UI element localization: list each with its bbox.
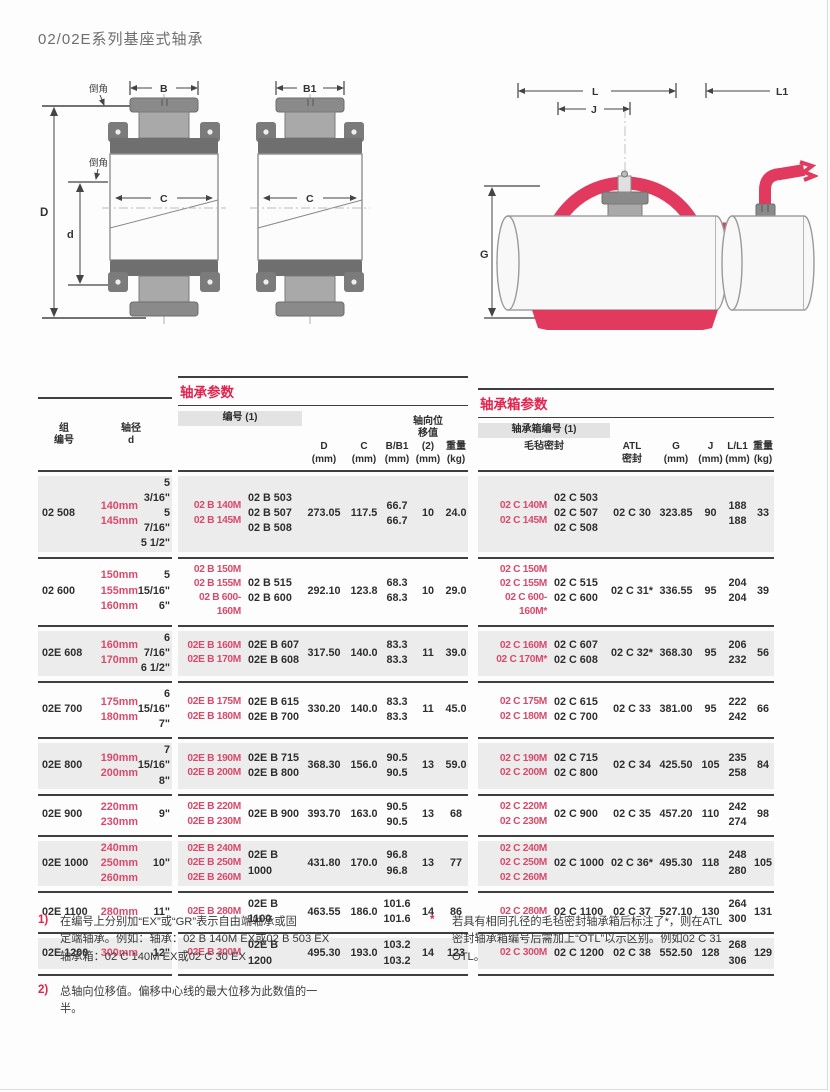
value-atl-seal: 02 C 35 bbox=[610, 800, 654, 830]
value-C: 156.0 bbox=[346, 751, 382, 781]
value-bearing-weight: 24.0 bbox=[444, 491, 468, 536]
value-G: 457.20 bbox=[654, 800, 698, 830]
dim-B1-label: B1 bbox=[303, 83, 317, 95]
shaft-diameter-mm: 160mm 170mm bbox=[90, 631, 138, 676]
group-number: 02 600 bbox=[38, 568, 90, 613]
value-atl-seal: 02 C 32* bbox=[610, 638, 654, 668]
bearing-designation-metric: 02E B 160M 02E B 170M bbox=[178, 638, 246, 668]
value-C: 123.8 bbox=[346, 563, 382, 620]
housing-designation-metric: 02 C 160M 02 C 170M* bbox=[478, 638, 552, 668]
value-axial-displacement: 13 bbox=[412, 842, 444, 885]
value-axial-displacement: 10 bbox=[412, 491, 444, 536]
group-number-header: 组 编号 bbox=[38, 423, 90, 448]
housing-designation-header: 轴承箱编号 (1) bbox=[478, 423, 610, 438]
bearing-designation: 02 B 515 02 B 600 bbox=[246, 563, 302, 620]
bearing-designation: 02E B 715 02E B 800 bbox=[246, 751, 302, 781]
value-housing-weight: 33 bbox=[752, 491, 774, 536]
footnote-marker: 1) bbox=[38, 914, 54, 966]
col-J: J bbox=[698, 440, 723, 453]
value-atl-seal: 02 C 30 bbox=[610, 491, 654, 536]
value-J: 95 bbox=[698, 563, 723, 620]
chamfer-label-2: 倒角 bbox=[89, 157, 108, 169]
housing-designation-metric: 02 C 240M 02 C 250M 02 C 260M bbox=[478, 842, 552, 885]
shaft-diameter-mm: 240mm 250mm 260mm bbox=[90, 841, 138, 886]
chamfer-label: 倒角 bbox=[89, 83, 108, 95]
col-weight: 重量 bbox=[752, 440, 774, 453]
value-J: 110 bbox=[698, 800, 723, 830]
value-B-B1: 96.8 96.8 bbox=[382, 842, 412, 885]
bearing-designation-metric: 02E B 240M 02E B 250M 02E B 260M bbox=[178, 842, 246, 885]
value-housing-weight: 105 bbox=[752, 842, 774, 885]
value-L-L1: 206 232 bbox=[723, 638, 752, 668]
dim-C-label-2: C bbox=[306, 193, 314, 205]
value-G: 336.55 bbox=[654, 563, 698, 620]
value-atl-seal: 02 C 34 bbox=[610, 751, 654, 781]
value-G: 425.50 bbox=[654, 751, 698, 781]
bearing-designation: 02E B 607 02E B 608 bbox=[246, 638, 302, 668]
value-axial-displacement: 13 bbox=[412, 800, 444, 830]
value-atl-seal: 02 C 36* bbox=[610, 842, 654, 885]
bearing-designation-metric: 02E B 190M 02E B 200M bbox=[178, 751, 246, 781]
shaft-diameter-mm: 140mm 145mm bbox=[90, 476, 138, 552]
value-L-L1: 235 258 bbox=[723, 751, 752, 781]
footnote-text: 总轴向位移值。偏移中心线的最大位移为此数值的一 半。 bbox=[60, 984, 317, 1019]
bearing-section-title: 轴承参数 bbox=[178, 376, 468, 406]
group-number: 02E 608 bbox=[38, 631, 90, 676]
footnote-text: 在编号上分别加“EX”或“GR”表示自由端轴承或固 定端轴承。例如：轴承：02 … bbox=[60, 914, 329, 966]
table-row: 02E 800 190mm 200mm 7 15/16" 8" 02E B 19… bbox=[38, 739, 778, 795]
bearing-designation: 02E B 900 bbox=[246, 800, 302, 830]
housing-header: 轴承箱编号 (1) 毛毡密封 ATL G J L/L1 重量 密封 (mm) (… bbox=[478, 418, 774, 472]
value-C: 140.0 bbox=[346, 638, 382, 668]
shaft-diameter-mm: 220mm 230mm bbox=[90, 800, 138, 830]
value-G: 495.30 bbox=[654, 842, 698, 885]
shaft-diameter-inch: 6 15/16" 7" bbox=[138, 687, 172, 732]
value-L-L1: 222 242 bbox=[723, 695, 752, 725]
table-row: 02E 700 175mm 180mm 6 15/16" 7" 02E B 17… bbox=[38, 683, 778, 739]
value-axial-displacement: 11 bbox=[412, 638, 444, 668]
value-bearing-weight: 29.0 bbox=[444, 563, 468, 620]
footnote-marker: * bbox=[430, 914, 446, 966]
value-G: 381.00 bbox=[654, 695, 698, 725]
page-title: 02/02E系列基座式轴承 bbox=[38, 28, 204, 49]
footnote-star: * 若具有相同孔径的毛毡密封轴承箱后标注了*，则在ATL 密封轴承箱编号后需加上… bbox=[430, 914, 778, 966]
value-B-B1: 68.3 68.3 bbox=[382, 563, 412, 620]
table-header: 组 编号 轴径 d 轴承参数 编号 (1) 轴向位 D C B/B1 移值 (2… bbox=[38, 376, 778, 472]
housing-designation: 02 C 715 02 C 800 bbox=[552, 751, 610, 781]
value-atl-seal: 02 C 31* bbox=[610, 563, 654, 620]
bearing-designation: 02 B 503 02 B 507 02 B 508 bbox=[246, 491, 302, 536]
group-number: 02E 1000 bbox=[38, 841, 90, 886]
housing-section-title: 轴承箱参数 bbox=[478, 388, 774, 418]
dim-B-label: B bbox=[160, 83, 168, 95]
dim-G-label: G bbox=[480, 249, 489, 261]
shaft-diameter-inch: 5 3/16" 5 7/16" 5 1/2" bbox=[138, 476, 172, 552]
housing-designation: 02 C 615 02 C 700 bbox=[552, 695, 610, 725]
value-atl-seal: 02 C 33 bbox=[610, 695, 654, 725]
table-row: 02E 608 160mm 170mm 6 7/16" 6 1/2" 02E B… bbox=[38, 627, 778, 683]
unit-mm: (mm) bbox=[654, 453, 698, 466]
housing-designation: 02 C 607 02 C 608 bbox=[552, 638, 610, 668]
footnotes-left: 1) 在编号上分别加“EX”或“GR”表示自由端轴承或固 定端轴承。例如：轴承：… bbox=[38, 914, 430, 1037]
value-J: 95 bbox=[698, 638, 723, 668]
housing-designation: 02 C 1000 bbox=[552, 842, 610, 885]
bearing-header: 编号 (1) 轴向位 D C B/B1 移值 (2) 重量 (mm) (mm) … bbox=[178, 406, 468, 472]
housing-designation-metric: 02 C 150M 02 C 155M 02 C 600-160M* bbox=[478, 563, 552, 620]
value-D: 317.50 bbox=[302, 638, 346, 668]
unit-mm: (mm) bbox=[382, 453, 412, 466]
footnotes-right: * 若具有相同孔径的毛毡密封轴承箱后标注了*，则在ATL 密封轴承箱编号后需加上… bbox=[430, 914, 778, 984]
unit-kg: (kg) bbox=[752, 453, 774, 466]
col-weight: 重量 bbox=[444, 428, 468, 453]
value-L-L1: 242 274 bbox=[723, 800, 752, 830]
value-bearing-weight: 68 bbox=[444, 800, 468, 830]
bearing-designation-metric: 02E B 175M 02E B 180M bbox=[178, 695, 246, 725]
footnote-1: 1) 在编号上分别加“EX”或“GR”表示自由端轴承或固 定端轴承。例如：轴承：… bbox=[38, 914, 430, 966]
value-B-B1: 90.5 90.5 bbox=[382, 800, 412, 830]
dim-L-label: L bbox=[592, 86, 599, 98]
value-housing-weight: 98 bbox=[752, 800, 774, 830]
unit-mm: (mm) bbox=[723, 453, 752, 466]
col-D: D bbox=[302, 428, 346, 453]
shaft-diameter-header: 轴径 d bbox=[90, 423, 172, 448]
value-L-L1: 188 188 bbox=[723, 491, 752, 536]
footnote-marker: 2) bbox=[38, 984, 54, 1019]
bearing-table: 组 编号 轴径 d 轴承参数 编号 (1) 轴向位 D C B/B1 移值 (2… bbox=[38, 376, 778, 976]
unit-mm: (mm) bbox=[302, 453, 346, 466]
value-J: 90 bbox=[698, 491, 723, 536]
value-C: 117.5 bbox=[346, 491, 382, 536]
value-bearing-weight: 77 bbox=[444, 842, 468, 885]
value-bearing-weight: 45.0 bbox=[444, 695, 468, 725]
value-L-L1: 204 204 bbox=[723, 563, 752, 620]
axial-header-top: 轴向位 bbox=[412, 411, 444, 428]
table-row: 02E 900 220mm 230mm 9" 02E B 220M 02E B … bbox=[38, 796, 778, 837]
pillow-block-housing-diagram: L J L1 G bbox=[478, 78, 818, 330]
value-G: 323.85 bbox=[654, 491, 698, 536]
shaft-diameter-inch: 6 7/16" 6 1/2" bbox=[138, 631, 172, 676]
unit-mm: (mm) bbox=[698, 453, 723, 466]
footnote-text: 若具有相同孔径的毛毡密封轴承箱后标注了*，则在ATL 密封轴承箱编号后需加上“O… bbox=[452, 914, 722, 966]
housing-designation: 02 C 503 02 C 507 02 C 508 bbox=[552, 491, 610, 536]
group-number: 02E 900 bbox=[38, 800, 90, 830]
bearing-designation: 02E B 1000 bbox=[246, 842, 302, 885]
unit-mm: (mm) bbox=[346, 453, 382, 466]
bearing-designation-metric: 02 B 140M 02 B 145M bbox=[178, 491, 246, 536]
value-axial-displacement: 11 bbox=[412, 695, 444, 725]
col-B-B1: B/B1 bbox=[382, 428, 412, 453]
value-bearing-weight: 39.0 bbox=[444, 638, 468, 668]
shaft-diameter-inch: 5 15/16" 6" bbox=[138, 568, 172, 613]
shaft-diameter-inch: 9" bbox=[138, 800, 172, 830]
designation-header: 编号 (1) bbox=[178, 411, 302, 426]
col-L-L1: L/L1 bbox=[723, 440, 752, 453]
bearing-dimension-diagram: 倒角 倒角 D d B bbox=[34, 78, 424, 330]
value-C: 170.0 bbox=[346, 842, 382, 885]
housing-designation-metric: 02 C 190M 02 C 200M bbox=[478, 751, 552, 781]
value-bearing-weight: 59.0 bbox=[444, 751, 468, 781]
housing-designation: 02 C 900 bbox=[552, 800, 610, 830]
value-L-L1: 248 280 bbox=[723, 842, 752, 885]
value-D: 431.80 bbox=[302, 842, 346, 885]
value-C: 163.0 bbox=[346, 800, 382, 830]
left-header: 组 编号 轴径 d bbox=[38, 397, 172, 472]
dim-d-label: d bbox=[67, 229, 74, 241]
value-D: 393.70 bbox=[302, 800, 346, 830]
dim-L1-label: L1 bbox=[776, 86, 788, 98]
dim-D-label: D bbox=[40, 207, 48, 219]
value-G: 368.30 bbox=[654, 638, 698, 668]
value-J: 105 bbox=[698, 751, 723, 781]
bearing-designation-metric: 02E B 220M 02E B 230M bbox=[178, 800, 246, 830]
group-number: 02E 700 bbox=[38, 687, 90, 732]
value-B-B1: 66.7 66.7 bbox=[382, 491, 412, 536]
footnote-2: 2) 总轴向位移值。偏移中心线的最大位移为此数值的一 半。 bbox=[38, 984, 430, 1019]
atl-header-top: ATL bbox=[610, 440, 654, 453]
unit-mm: (mm) bbox=[412, 453, 444, 466]
value-B-B1: 83.3 83.3 bbox=[382, 638, 412, 668]
dim-C-label: C bbox=[160, 193, 168, 205]
felt-seal-header: 毛毡密封 bbox=[478, 440, 610, 453]
atl-header-bottom: 密封 bbox=[610, 453, 654, 466]
shaft-diameter-mm: 150mm 155mm 160mm bbox=[90, 568, 138, 613]
axial-header-bottom: 移值 (2) bbox=[412, 428, 444, 453]
value-D: 292.10 bbox=[302, 563, 346, 620]
table-row: 02E 1000 240mm 250mm 260mm 10" 02E B 240… bbox=[38, 837, 778, 893]
value-D: 273.05 bbox=[302, 491, 346, 536]
value-B-B1: 83.3 83.3 bbox=[382, 695, 412, 725]
value-J: 95 bbox=[698, 695, 723, 725]
housing-designation-metric: 02 C 175M 02 C 180M bbox=[478, 695, 552, 725]
value-B-B1: 90.5 90.5 bbox=[382, 751, 412, 781]
value-axial-displacement: 13 bbox=[412, 751, 444, 781]
value-housing-weight: 39 bbox=[752, 563, 774, 620]
shaft-diameter-inch: 7 15/16" 8" bbox=[138, 743, 172, 788]
shaft-diameter-inch: 10" bbox=[138, 841, 172, 886]
housing-designation-metric: 02 C 140M 02 C 145M bbox=[478, 491, 552, 536]
bearing-designation: 02E B 615 02E B 700 bbox=[246, 695, 302, 725]
value-D: 368.30 bbox=[302, 751, 346, 781]
value-housing-weight: 56 bbox=[752, 638, 774, 668]
table-row: 02 600 150mm 155mm 160mm 5 15/16" 6" 02 … bbox=[38, 559, 778, 627]
value-J: 118 bbox=[698, 842, 723, 885]
value-C: 140.0 bbox=[346, 695, 382, 725]
housing-designation: 02 C 515 02 C 600 bbox=[552, 563, 610, 620]
value-housing-weight: 66 bbox=[752, 695, 774, 725]
value-axial-displacement: 10 bbox=[412, 563, 444, 620]
table-rows: 02 508 140mm 145mm 5 3/16" 5 7/16" 5 1/2… bbox=[38, 472, 778, 976]
table-row: 02 508 140mm 145mm 5 3/16" 5 7/16" 5 1/2… bbox=[38, 472, 778, 559]
bearing-designation-metric: 02 B 150M 02 B 155M 02 B 600-160M bbox=[178, 563, 246, 620]
shaft-diameter-mm: 175mm 180mm bbox=[90, 687, 138, 732]
dim-J-label: J bbox=[591, 104, 597, 116]
shaft-diameter-mm: 190mm 200mm bbox=[90, 743, 138, 788]
value-D: 330.20 bbox=[302, 695, 346, 725]
value-housing-weight: 84 bbox=[752, 751, 774, 781]
col-C: C bbox=[346, 428, 382, 453]
group-number: 02E 800 bbox=[38, 743, 90, 788]
group-number: 02 508 bbox=[38, 476, 90, 552]
unit-kg: (kg) bbox=[444, 453, 468, 466]
housing-designation-metric: 02 C 220M 02 C 230M bbox=[478, 800, 552, 830]
col-G: G bbox=[654, 440, 698, 453]
